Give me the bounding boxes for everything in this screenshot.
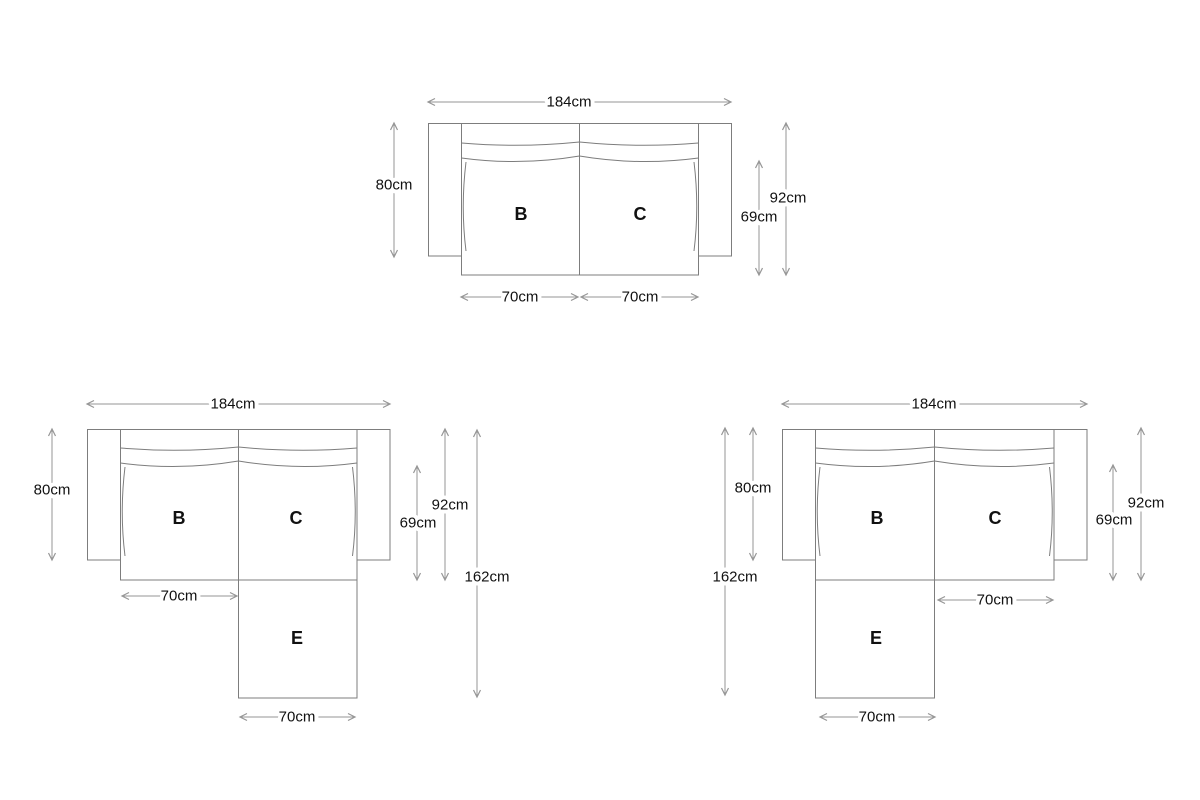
right-armrest (357, 430, 390, 561)
labels: 184cm 162cm 80cm 69cm 92cm 70cm 70cm B C… (712, 396, 1164, 726)
page-canvas: 184cm 80cm 69cm 92cm 70cm 70cm B C (0, 0, 1200, 800)
overall-depth-label: 92cm (770, 190, 807, 207)
left-armrest (783, 430, 816, 561)
sofa-outline (783, 430, 1088, 699)
seat-b-letter: B (515, 204, 528, 224)
overall-width-label: 184cm (546, 94, 591, 111)
overall-depth-label: 92cm (1128, 495, 1165, 512)
overall-length-label: 162cm (712, 569, 757, 586)
chaise-left-drawing: 184cm 162cm 80cm 69cm 92cm 70cm 70cm B C… (700, 390, 1170, 740)
overall-width-label: 184cm (210, 396, 255, 413)
seat-b-letter: B (871, 508, 884, 528)
diagram-chaise-left: 184cm 162cm 80cm 69cm 92cm 70cm 70cm B C… (700, 390, 1170, 740)
seat-depth-label: 69cm (400, 515, 437, 532)
cushion-c-side-seam (694, 162, 697, 251)
seat-depth-label: 69cm (1096, 512, 1133, 529)
seat-c-letter: C (989, 508, 1002, 528)
cushion-b-side-seam (463, 162, 466, 251)
right-armrest (699, 124, 732, 257)
arm-depth-label: 80cm (735, 480, 772, 497)
chaise-width-label: 70cm (859, 709, 896, 726)
labels: 184cm 80cm 69cm 92cm 70cm 70cm B C (376, 94, 807, 306)
overall-length-label: 162cm (464, 569, 509, 586)
diagram-two-seater: 184cm 80cm 69cm 92cm 70cm 70cm B C (380, 85, 820, 315)
sofa-outline (88, 430, 391, 699)
chaise-e-letter: E (870, 628, 882, 648)
arm-depth-label: 80cm (376, 177, 413, 194)
cushion-c-side-seam (1050, 467, 1053, 556)
seat-c-letter: C (634, 204, 647, 224)
left-armrest (88, 430, 121, 561)
seat-c-letter: C (290, 508, 303, 528)
overall-depth-label: 92cm (432, 497, 469, 514)
dimension-lines (394, 102, 786, 297)
seat-c-width-label: 70cm (622, 289, 659, 306)
cushion-b-side-seam (122, 467, 125, 556)
seat-c-width-label: 70cm (977, 592, 1014, 609)
seat-b-letter: B (173, 508, 186, 528)
left-armrest (429, 124, 462, 257)
sofa-outline (429, 124, 732, 276)
arm-depth-label: 80cm (34, 482, 71, 499)
seat-b-width-label: 70cm (502, 289, 539, 306)
chaise-right-drawing: 184cm 80cm 69cm 92cm 162cm 70cm 70cm B C… (30, 390, 520, 740)
chaise-width-label: 70cm (279, 709, 316, 726)
seat-b-width-label: 70cm (161, 588, 198, 605)
cushion-b-side-seam (817, 467, 820, 556)
cushion-c-side-seam (353, 467, 356, 556)
diagram-chaise-right: 184cm 80cm 69cm 92cm 162cm 70cm 70cm B C… (30, 390, 520, 740)
seat-depth-label: 69cm (741, 209, 778, 226)
chaise-e-letter: E (291, 628, 303, 648)
two-seater-drawing: 184cm 80cm 69cm 92cm 70cm 70cm B C (380, 85, 820, 315)
right-armrest (1054, 430, 1087, 561)
overall-width-label: 184cm (911, 396, 956, 413)
